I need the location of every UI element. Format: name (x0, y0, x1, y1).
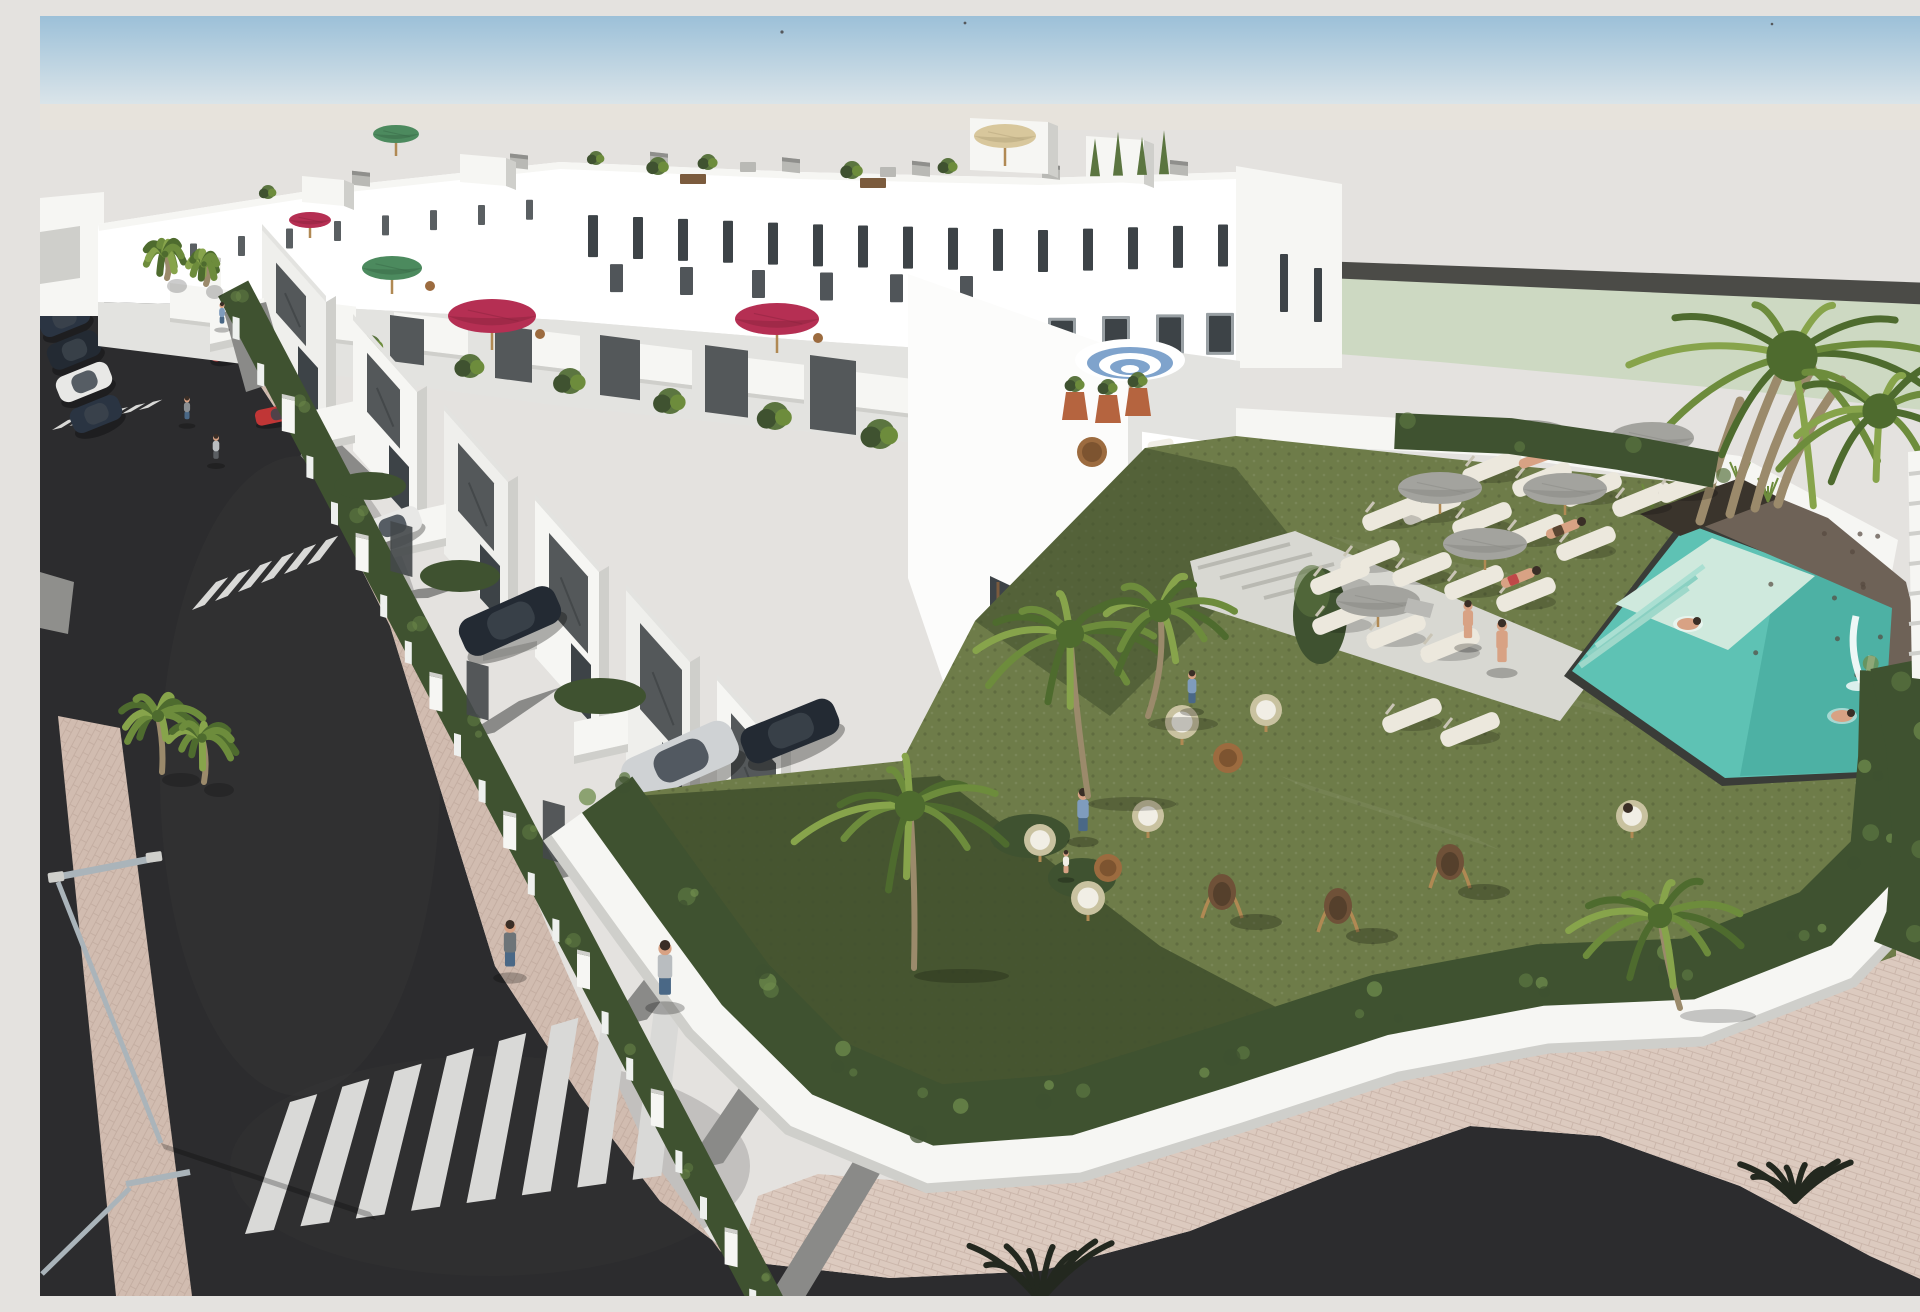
sky (40, 16, 1920, 108)
render-canvas (40, 16, 1920, 1296)
architectural-render: Aerial 3D render of a new-build terraced… (40, 16, 1920, 1296)
palm-crown (189, 252, 217, 278)
